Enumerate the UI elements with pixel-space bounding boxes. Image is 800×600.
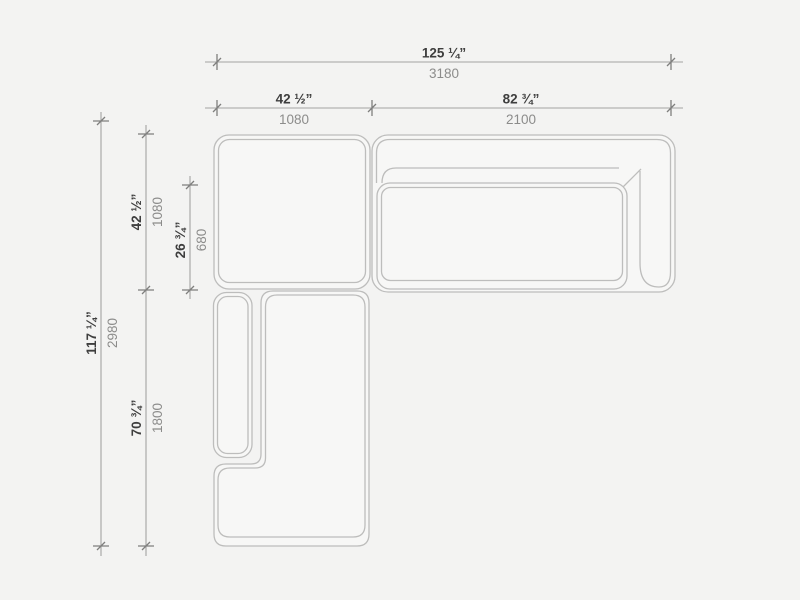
dimension-segment-depths: 42 ½” 1080 70 ¾” 1800 [129,125,165,556]
dimension-label-mm: 1080 [150,197,165,227]
module-chaise-unit [214,291,370,546]
module-sofa-unit [372,135,675,292]
dimension-seat-depth: 26 ¾” 680 [173,176,209,299]
dimension-label-mm: 3180 [429,66,459,81]
dimension-label-mm: 680 [194,229,209,252]
dimension-label-mm: 2100 [506,112,536,127]
dimension-segment-widths: 42 ½” 1080 82 ¾” 2100 [205,92,683,128]
corner-unit-outer-edge [214,135,370,289]
diagram-svg: 125 ¼” 3180 42 ½” 1080 82 ¾” 2100 117 ¼”… [0,0,800,600]
dimension-label-inches: 82 ¾” [503,92,540,107]
module-corner-unit [214,135,370,289]
dimension-label-inches: 70 ¾” [129,400,144,437]
dimension-label-mm: 1080 [279,112,309,127]
dimension-label-inches: 42 ½” [129,194,144,231]
dimension-label-inches: 26 ¾” [173,222,188,259]
dimension-label-inches: 42 ½” [276,92,313,107]
dimension-total-depth: 117 ¼” 2980 [84,112,120,556]
dimension-label-mm: 2980 [105,318,120,348]
sofa-seat-outer [377,183,627,289]
dimension-total-width: 125 ¼” 3180 [205,46,683,82]
dimension-label-inches: 125 ¼” [422,46,466,61]
chaise-backrest-outer [214,293,253,458]
dimension-label-mm: 1800 [150,403,165,433]
sofa-dimension-diagram: 125 ¼” 3180 42 ½” 1080 82 ¾” 2100 117 ¼”… [0,0,800,600]
dimension-label-inches: 117 ¼” [84,311,99,355]
